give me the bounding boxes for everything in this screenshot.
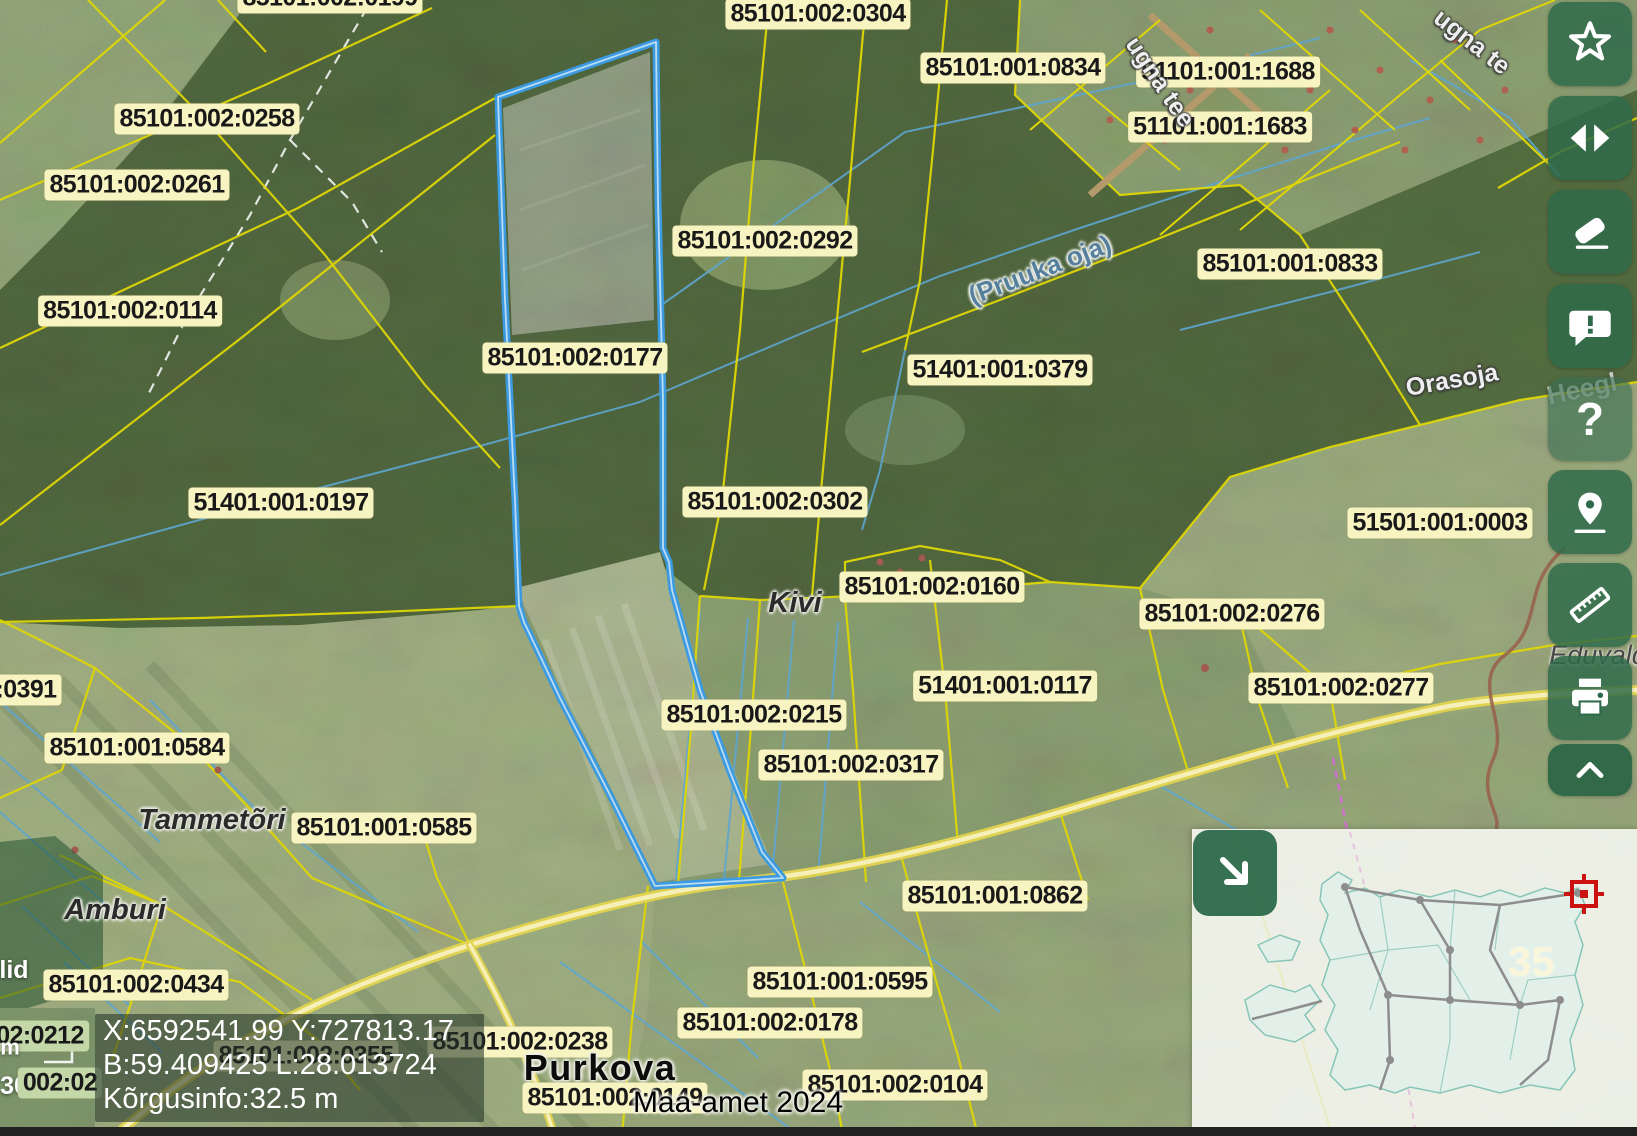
star-icon bbox=[1561, 15, 1619, 73]
compare-swipe-icon bbox=[1561, 109, 1619, 167]
feedback-comment-icon bbox=[1561, 297, 1619, 355]
coordinate-readout: X:6592541.99 Y:727813.17 B:59.409425 L:2… bbox=[95, 1014, 484, 1122]
compare-layers-button[interactable] bbox=[1548, 96, 1632, 180]
favorites-button[interactable] bbox=[1548, 2, 1632, 86]
feedback-button[interactable] bbox=[1548, 284, 1632, 368]
ruler-icon bbox=[1561, 576, 1619, 634]
help-icon: ? bbox=[1576, 392, 1604, 446]
erase-button[interactable] bbox=[1548, 190, 1632, 274]
bottom-edge-bar bbox=[0, 1127, 1637, 1136]
height-info: Kõrgusinfo:32.5 m bbox=[95, 1082, 484, 1116]
collapse-toolbar-button[interactable] bbox=[1548, 744, 1632, 796]
help-button[interactable]: ? bbox=[1548, 377, 1632, 461]
eraser-icon bbox=[1561, 203, 1619, 261]
coordinate-bl: B:59.409425 L:28.013724 bbox=[95, 1048, 484, 1082]
print-button[interactable] bbox=[1548, 656, 1632, 740]
minimap-expand-button[interactable] bbox=[1193, 830, 1277, 916]
coordinate-xy: X:6592541.99 Y:727813.17 bbox=[95, 1014, 484, 1048]
measure-button[interactable] bbox=[1548, 563, 1632, 647]
location-pin-icon bbox=[1561, 483, 1619, 541]
chevron-up-icon bbox=[1561, 752, 1619, 788]
map-application: 85101:002:019985101:002:030485101:001:08… bbox=[0, 0, 1637, 1136]
locate-button[interactable] bbox=[1548, 470, 1632, 554]
arrow-down-right-icon bbox=[1213, 850, 1257, 897]
current-location-marker bbox=[1564, 874, 1604, 914]
printer-icon bbox=[1561, 669, 1619, 727]
region-number-label: 35 bbox=[1508, 938, 1555, 986]
